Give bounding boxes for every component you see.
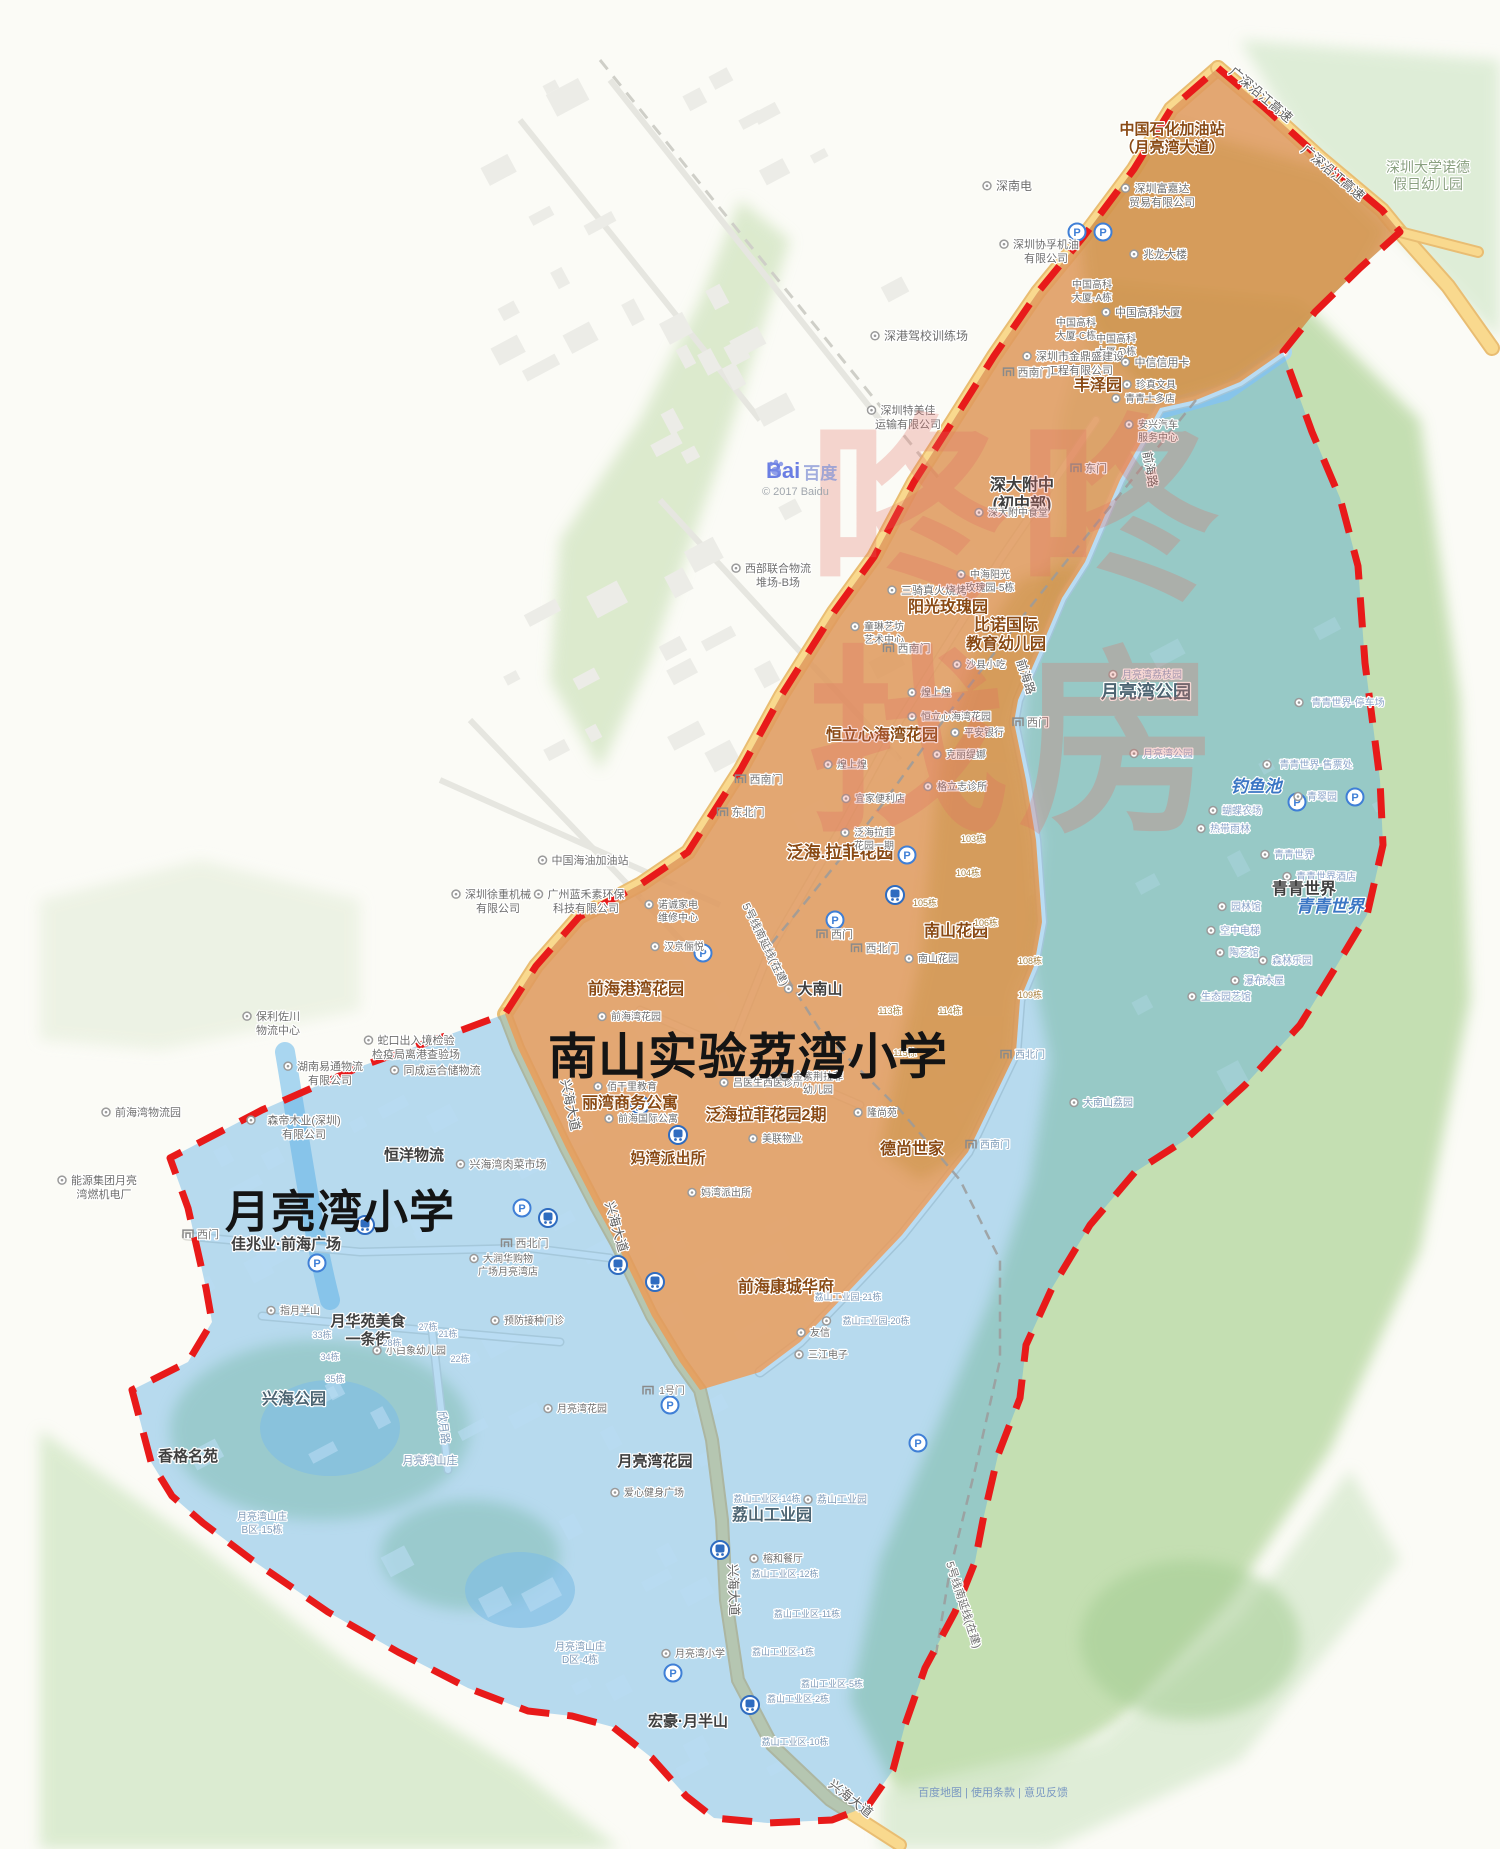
poi-dot-icon: [951, 729, 959, 737]
poi-dot-icon: [1261, 851, 1269, 859]
svg-text:荔山工业区-14栋: 荔山工业区-14栋: [733, 1493, 800, 1504]
metro-icon: [886, 886, 904, 904]
map-label: 大南山荔园: [1083, 1096, 1133, 1109]
svg-text:22栋: 22栋: [450, 1353, 469, 1364]
map-label: 友信: [810, 1326, 830, 1339]
map-label: 恒立心海湾花园: [826, 725, 938, 744]
map-label: 月亮湾公园: [1100, 681, 1191, 702]
poi-dot-icon: [365, 1036, 373, 1044]
poi-dot-icon: [1125, 421, 1133, 429]
parking-icon: P: [1069, 224, 1086, 241]
svg-text:月亮湾山庄: 月亮湾山庄: [403, 1453, 458, 1467]
poi-dot-icon: [457, 1160, 465, 1168]
map-label: 月亮湾山庄: [403, 1453, 458, 1467]
svg-text:煌上煌: 煌上煌: [837, 758, 867, 771]
map-label: 宏豪·月半山: [648, 1712, 728, 1730]
poi-dot-icon: [611, 1489, 619, 1497]
map-label: 108栋: [1018, 955, 1042, 966]
svg-text:兴海公园: 兴海公园: [262, 1389, 326, 1408]
svg-text:东北门: 东北门: [732, 805, 765, 819]
map-label: 月亮湾花园: [557, 1402, 607, 1415]
poi-dot-icon: [1216, 949, 1224, 957]
svg-text:35栋: 35栋: [325, 1373, 344, 1384]
poi-dot-icon: [373, 1347, 381, 1355]
map-label: 荔山工业区-14栋: [733, 1493, 800, 1504]
svg-text:114栋: 114栋: [938, 1005, 961, 1016]
svg-text:P: P: [666, 1400, 673, 1412]
svg-text:P: P: [518, 1203, 525, 1215]
poi-dot-icon: [1197, 825, 1205, 833]
svg-text:108栋: 108栋: [1018, 955, 1042, 966]
parking-icon: P: [910, 1435, 927, 1452]
svg-text:月亮湾花园: 月亮湾花园: [557, 1402, 607, 1415]
poi-dot-icon: [1259, 957, 1267, 965]
poi-dot-icon: [1122, 358, 1130, 366]
poi-dot-icon: [605, 1115, 613, 1123]
metro-icon: [669, 1126, 687, 1144]
map-label: 生态园艺馆: [1201, 990, 1251, 1003]
poi-dot-icon: [841, 829, 849, 837]
map-label: 南山花园: [918, 952, 958, 965]
poi-dot-icon: [1102, 308, 1110, 316]
map-label: 煌上煌: [921, 686, 951, 699]
svg-text:东门: 东门: [1085, 461, 1107, 475]
map-label: 113栋: [878, 1005, 901, 1016]
map-label: 22栋: [450, 1353, 469, 1364]
poi-dot-icon: [470, 1255, 478, 1263]
svg-text:热带雨林: 热带雨林: [1210, 822, 1250, 835]
map-label: 恒洋物流: [384, 1146, 444, 1164]
svg-text:青青世界: 青青世界: [1274, 848, 1314, 861]
svg-text:荔山工业区-1栋: 荔山工业区-1栋: [752, 1646, 814, 1657]
parking-icon: P: [514, 1200, 531, 1217]
svg-text:恒立心海湾花园: 恒立心海湾花园: [826, 725, 938, 744]
svg-text:同成运合储物流: 同成运合储物流: [404, 1063, 481, 1077]
poi-dot-icon: [868, 406, 876, 414]
svg-text:兴海大道: 兴海大道: [725, 1564, 742, 1617]
svg-text:青青士多店: 青青士多店: [1125, 392, 1175, 405]
svg-text:P: P: [669, 1668, 676, 1680]
poi-dot-icon: [247, 1116, 255, 1124]
map-label: 荔山工业区-10栋: [761, 1736, 828, 1747]
svg-text:西南门: 西南门: [1018, 365, 1051, 379]
svg-text:深南电: 深南电: [996, 178, 1032, 193]
map-label: 青翠园: [1307, 790, 1337, 803]
map-label: 兴海大道: [725, 1564, 742, 1617]
map-label: 阳光玫瑰园: [908, 597, 988, 616]
poi-dot-icon: [102, 1108, 110, 1116]
poi-dot-icon: [662, 1650, 670, 1658]
map-label: 荔山工业区-5栋: [801, 1678, 863, 1689]
svg-text:P: P: [1351, 792, 1358, 804]
parking-icon: P: [899, 847, 916, 864]
attribution-links[interactable]: 百度地图 | 使用条款 | 意见反馈: [918, 1784, 1068, 1800]
map-label: 荔山工业区-12栋: [751, 1568, 818, 1579]
map-label: 荔山工业区-2栋: [767, 1693, 829, 1704]
map-label: 青青世界: [1272, 879, 1336, 898]
parking-icon: P: [827, 912, 844, 929]
poi-dot-icon: [785, 985, 793, 993]
poi-dot-icon: [888, 586, 896, 594]
map-label: 33栋: [312, 1329, 331, 1340]
map-label: 103栋: [961, 833, 985, 844]
svg-text:月亮湾小学: 月亮湾小学: [675, 1647, 725, 1660]
svg-text:兆龙大楼: 兆龙大楼: [1143, 247, 1187, 261]
map-label: 指月半山: [280, 1304, 320, 1317]
map-label: 中信信用卡: [1135, 356, 1190, 369]
poi-dot-icon: [491, 1317, 499, 1325]
poi-dot-icon: [953, 661, 961, 669]
svg-text:大南山: 大南山: [797, 980, 842, 998]
map-label: 空中电梯: [1220, 924, 1260, 937]
map-label: 105栋: [913, 897, 937, 908]
map-label: 丰泽园: [1074, 375, 1122, 394]
svg-text:美联物业: 美联物业: [762, 1132, 802, 1145]
poi-dot-icon: [908, 713, 916, 721]
baidu-logo: Bai 百度: [766, 458, 837, 484]
map-label: 28栋: [382, 1337, 401, 1348]
poi-dot-icon: [933, 751, 941, 759]
map-label: 园林馆: [1231, 900, 1261, 913]
map-label: 前海国际公寓: [618, 1112, 678, 1125]
svg-text:园林馆: 园林馆: [1231, 900, 1261, 913]
svg-text:荔山工业区-12栋: 荔山工业区-12栋: [751, 1568, 818, 1579]
svg-text:月亮湾荔枝园: 月亮湾荔枝园: [1122, 668, 1182, 681]
map-label: 35栋: [325, 1373, 344, 1384]
svg-text:21栋: 21栋: [438, 1328, 457, 1339]
map-label: 青青世界: [1274, 848, 1314, 861]
map-label: 前海港湾花园: [588, 979, 684, 998]
svg-text:106栋: 106栋: [974, 917, 998, 928]
svg-text:中国高科大厦: 中国高科大厦: [1115, 305, 1181, 319]
poi-dot-icon: [1218, 903, 1226, 911]
parking-icon: P: [309, 1255, 326, 1272]
parking-icon: P: [1347, 789, 1364, 806]
map-label: 104栋: [956, 867, 980, 878]
parking-icon: P: [665, 1665, 682, 1682]
poi-dot-icon: [749, 1135, 757, 1143]
map-label: 月亮湾公园: [1143, 747, 1193, 760]
baidu-paw-icon: [766, 458, 786, 478]
svg-text:105栋: 105栋: [913, 897, 937, 908]
svg-text:P: P: [313, 1258, 320, 1270]
svg-text:P: P: [831, 915, 838, 927]
svg-text:恒立心海湾花园: 恒立心海湾花园: [921, 710, 991, 723]
map-label: 西北门: [866, 941, 899, 955]
map-label: 丽湾商务公寓: [582, 1093, 678, 1112]
map-label: 东门: [1085, 461, 1107, 475]
poi-dot-icon: [284, 1062, 292, 1070]
poi-dot-icon: [975, 509, 983, 517]
map-label: 美联物业: [762, 1132, 802, 1145]
poi-dot-icon: [795, 1351, 803, 1359]
poi-dot-icon: [797, 1329, 805, 1337]
svg-text:丽湾商务公寓: 丽湾商务公寓: [582, 1093, 678, 1112]
svg-text:妈湾派出所: 妈湾派出所: [701, 1186, 751, 1199]
svg-text:格立志诊所: 格立志诊所: [937, 780, 987, 793]
map-label: 兴海公园: [262, 1389, 326, 1408]
map-label: 106栋: [974, 917, 998, 928]
map-label: 27栋: [418, 1321, 437, 1332]
map-label: 西北门: [516, 1236, 549, 1250]
poi-dot-icon: [1231, 977, 1239, 985]
poi-dot-icon: [1000, 240, 1008, 248]
svg-text:34栋: 34栋: [320, 1351, 339, 1362]
svg-text:西北门: 西北门: [1015, 1048, 1045, 1061]
svg-text:三骑真火烧烤: 三骑真火烧烤: [901, 583, 967, 597]
metro-icon: [741, 1696, 759, 1714]
map-label: 1号门: [659, 1384, 685, 1397]
svg-text:深圳大学诺德假日幼儿园: 深圳大学诺德假日幼儿园: [1386, 159, 1470, 192]
svg-text:兴海湾肉菜市场: 兴海湾肉菜市场: [470, 1157, 547, 1171]
svg-text:森林乐园: 森林乐园: [1272, 954, 1312, 967]
svg-text:深大附中食堂: 深大附中食堂: [988, 506, 1048, 519]
poi-dot-icon: [1207, 927, 1215, 935]
svg-text:西南门: 西南门: [898, 641, 931, 655]
zone-label-yueliangwan: 月亮湾小学: [225, 1176, 455, 1241]
map-label: 西北门: [1015, 1048, 1045, 1061]
map-label: 青青世界-停车场: [1311, 696, 1384, 709]
poi-dot-icon: [804, 1496, 812, 1504]
poi-dot-icon: [1070, 1099, 1078, 1107]
poi-dot-icon: [1112, 395, 1120, 403]
map-label: 34栋: [320, 1351, 339, 1362]
svg-text:钓鱼池: 钓鱼池: [1231, 777, 1284, 796]
svg-text:西南门: 西南门: [750, 772, 783, 786]
poi-dot-icon: [957, 571, 965, 579]
poi-dot-icon: [905, 955, 913, 963]
svg-text:阳光玫瑰园: 阳光玫瑰园: [908, 597, 988, 616]
metro-icon: [646, 1273, 664, 1291]
map-label: 深南电: [996, 178, 1032, 193]
park-area: [1080, 1560, 1300, 1720]
map-label: 荔山工业区-11栋: [774, 1608, 840, 1619]
map-label: 西门: [831, 927, 853, 941]
map-label: 西南门: [1018, 365, 1051, 379]
map-label: 兆龙大楼: [1143, 247, 1187, 261]
basemap: PPPPPPPPPPPP中国石化加油站（月亮湾大道）深圳大学诺德假日幼儿园广深沿…: [0, 0, 1500, 1849]
svg-text:荔山工业区-2栋: 荔山工业区-2栋: [767, 1693, 829, 1704]
poi-dot-icon: [823, 1317, 831, 1325]
svg-text:103栋: 103栋: [961, 833, 985, 844]
map-label: 泛海拉菲花园2期: [706, 1105, 827, 1124]
poi-dot-icon: [842, 795, 850, 803]
map-label: 爱心健身广场: [624, 1486, 684, 1499]
map-label: 隆尚苑: [867, 1106, 897, 1119]
svg-text:113栋: 113栋: [878, 1005, 901, 1016]
svg-text:1号门: 1号门: [659, 1384, 685, 1397]
svg-text:青青世界-停车场: 青青世界-停车场: [1311, 696, 1384, 709]
map-label: 荔山工业园: [817, 1493, 867, 1506]
metro-icon: [711, 1541, 729, 1559]
svg-text:西门: 西门: [197, 1227, 219, 1241]
map-label: 109栋: [1018, 989, 1042, 1000]
poi-dot-icon: [908, 689, 916, 697]
svg-text:荔山工业园: 荔山工业园: [731, 1505, 812, 1524]
poi-dot-icon: [688, 1189, 696, 1197]
svg-text:预防接种门诊: 预防接种门诊: [504, 1314, 564, 1327]
svg-text:泛海拉菲花园2期: 泛海拉菲花园2期: [706, 1105, 827, 1124]
map-label: 荔山工业园-21栋: [814, 1291, 881, 1302]
map-label: 妈湾派出所: [630, 1149, 705, 1167]
poi-dot-icon: [750, 1555, 758, 1563]
svg-text:中国海油加油站: 中国海油加油站: [552, 853, 629, 867]
poi-dot-icon: [1130, 250, 1138, 258]
map-label: 西南门: [750, 772, 783, 786]
map-label: 114栋: [938, 1005, 961, 1016]
map-label: 三骑真火烧烤: [901, 583, 967, 597]
svg-text:恒洋物流: 恒洋物流: [384, 1146, 444, 1164]
svg-text:P: P: [914, 1438, 921, 1450]
svg-text:宏豪·月半山: 宏豪·月半山: [648, 1712, 728, 1730]
map-label: 21栋: [438, 1328, 457, 1339]
svg-text:德尚世家: 德尚世家: [880, 1139, 945, 1158]
poi-dot-icon: [1123, 381, 1131, 389]
svg-text:丰泽园: 丰泽园: [1074, 375, 1122, 394]
svg-text:克丽缇娜: 克丽缇娜: [946, 748, 986, 761]
svg-text:大南山荔园: 大南山荔园: [1083, 1096, 1133, 1109]
svg-text:榕和餐厅: 榕和餐厅: [763, 1552, 803, 1565]
map-label: 榕和餐厅: [763, 1552, 803, 1565]
map-label: 中国高科大厦: [1115, 305, 1181, 319]
map-label: 西门: [1027, 715, 1049, 729]
map-label: 西门: [197, 1227, 219, 1241]
svg-text:西门: 西门: [1027, 715, 1049, 729]
svg-text:爱心健身广场: 爱心健身广场: [624, 1486, 684, 1499]
svg-text:三江电子: 三江电子: [808, 1348, 848, 1361]
poi-dot-icon: [651, 943, 659, 951]
map-label: 沙县小吃: [966, 658, 1006, 671]
map-canvas[interactable]: PPPPPPPPPPPP中国石化加油站（月亮湾大道）深圳大学诺德假日幼儿园广深沿…: [0, 0, 1500, 1849]
map-label: 大南山: [797, 980, 842, 998]
map-label: 格立志诊所: [937, 780, 987, 793]
map-label: 德尚世家: [880, 1139, 945, 1158]
map-label: 煌上煌: [837, 758, 867, 771]
poi-dot-icon: [267, 1307, 275, 1315]
poi-dot-icon: [854, 1109, 862, 1117]
svg-text:荔山工业区-10栋: 荔山工业区-10栋: [761, 1736, 828, 1747]
poi-dot-icon: [645, 901, 653, 909]
poi-dot-icon: [851, 623, 859, 631]
poi-dot-icon: [924, 783, 932, 791]
svg-text:中信信用卡: 中信信用卡: [1135, 356, 1190, 369]
map-label: 汉京俪悦: [664, 940, 704, 953]
svg-text:33栋: 33栋: [312, 1329, 331, 1340]
parking-icon: P: [662, 1397, 679, 1414]
map-label: 东北门: [732, 805, 765, 819]
svg-text:西北门: 西北门: [866, 941, 899, 955]
svg-text:109栋: 109栋: [1018, 989, 1042, 1000]
svg-text:28栋: 28栋: [382, 1337, 401, 1348]
poi-dot-icon: [1295, 699, 1303, 707]
svg-text:青青世界-售票处: 青青世界-售票处: [1279, 758, 1352, 771]
map-label: 中国海油加油站: [552, 853, 629, 867]
svg-text:陶艺馆: 陶艺馆: [1229, 946, 1259, 959]
map-label: 森林乐园: [1272, 954, 1312, 967]
map-label: 瀑布木屋: [1244, 975, 1284, 987]
svg-text:月亮湾花园: 月亮湾花园: [616, 1452, 692, 1470]
svg-text:南山花园: 南山花园: [918, 952, 958, 965]
map-label: 青青世界: [1296, 897, 1366, 916]
poi-dot-icon: [1188, 993, 1196, 1001]
map-label: 月亮湾小学: [675, 1647, 725, 1660]
svg-text:荔山工业区-5栋: 荔山工业区-5栋: [801, 1678, 863, 1689]
map-label: 珍真文具: [1136, 378, 1176, 391]
svg-text:P: P: [1099, 227, 1106, 239]
svg-text:煌上煌: 煌上煌: [921, 686, 951, 699]
map-label: 宜家便利店: [855, 792, 905, 805]
map-label: 月亮湾花园: [616, 1452, 692, 1470]
svg-text:西南门: 西南门: [980, 1138, 1010, 1151]
poi-dot-icon: [58, 1176, 66, 1184]
map-label: 月亮湾荔枝园: [1122, 668, 1182, 681]
svg-text:P: P: [1073, 227, 1080, 239]
baidu-logo-cn: 百度: [803, 459, 837, 484]
map-label: 荔山工业园: [731, 1505, 812, 1524]
map-label: 预防接种门诊: [504, 1314, 564, 1327]
svg-text:西北门: 西北门: [516, 1236, 549, 1250]
map-label: 恒立心海湾花园: [921, 710, 991, 723]
poi-dot-icon: [1263, 761, 1271, 769]
poi-dot-icon: [544, 1405, 552, 1413]
map-label: 妈湾派出所: [701, 1186, 751, 1199]
svg-text:青青世界: 青青世界: [1296, 897, 1366, 916]
map-label: 青青世界-售票处: [1279, 758, 1352, 771]
svg-text:香格名苑: 香格名苑: [158, 1447, 218, 1465]
poi-dot-icon: [732, 564, 740, 572]
svg-text:平安银行: 平安银行: [964, 726, 1004, 739]
map-label: 平安银行: [964, 726, 1004, 739]
svg-text:汉京俪悦: 汉京俪悦: [664, 940, 704, 953]
map-label: 深港驾校训练场: [884, 328, 968, 343]
svg-text:指月半山: 指月半山: [280, 1304, 320, 1317]
svg-text:空中电梯: 空中电梯: [1220, 924, 1260, 937]
poi-dot-icon: [1209, 807, 1217, 815]
zone-label-nanshan-shiyan-liwan: 南山实验荔湾小学: [548, 1018, 948, 1089]
metro-icon: [539, 1209, 557, 1227]
map-label: 深大附中食堂: [988, 506, 1048, 519]
svg-text:生态园艺馆: 生态园艺馆: [1201, 990, 1251, 1003]
map-label: 西南门: [898, 641, 931, 655]
svg-text:前海国际公寓: 前海国际公寓: [618, 1112, 678, 1125]
svg-text:妈湾派出所: 妈湾派出所: [630, 1149, 705, 1167]
svg-text:珍真文具: 珍真文具: [1136, 378, 1176, 391]
svg-text:西门: 西门: [831, 927, 853, 941]
map-label: 深圳大学诺德假日幼儿园: [1386, 159, 1470, 192]
map-label: 西南门: [980, 1138, 1010, 1151]
poi-dot-icon: [1130, 750, 1138, 758]
map-label: 荔山工业区-1栋: [752, 1646, 814, 1657]
map-label: 蝴蝶农场: [1222, 804, 1262, 817]
map-label: 青青士多店: [1125, 392, 1175, 405]
svg-text:104栋: 104栋: [956, 867, 980, 878]
poi-dot-icon: [539, 856, 547, 864]
poi-dot-icon: [391, 1066, 399, 1074]
svg-text:荔山工业区-11栋: 荔山工业区-11栋: [774, 1608, 840, 1619]
poi-dot-icon: [243, 1012, 251, 1020]
svg-text:青青世界: 青青世界: [1272, 879, 1336, 898]
map-label: 香格名苑: [158, 1447, 218, 1465]
svg-text:青翠园: 青翠园: [1307, 790, 1337, 803]
poi-dot-icon: [983, 182, 991, 190]
svg-text:前海港湾花园: 前海港湾花园: [588, 979, 684, 998]
map-label: 钓鱼池: [1231, 777, 1284, 796]
metro-icon: [609, 1256, 627, 1274]
map-label: 同成运合储物流: [404, 1063, 481, 1077]
map-label: 兴海湾肉菜市场: [470, 1157, 547, 1171]
svg-text:P: P: [903, 850, 910, 862]
svg-text:深港驾校训练场: 深港驾校训练场: [884, 328, 968, 343]
